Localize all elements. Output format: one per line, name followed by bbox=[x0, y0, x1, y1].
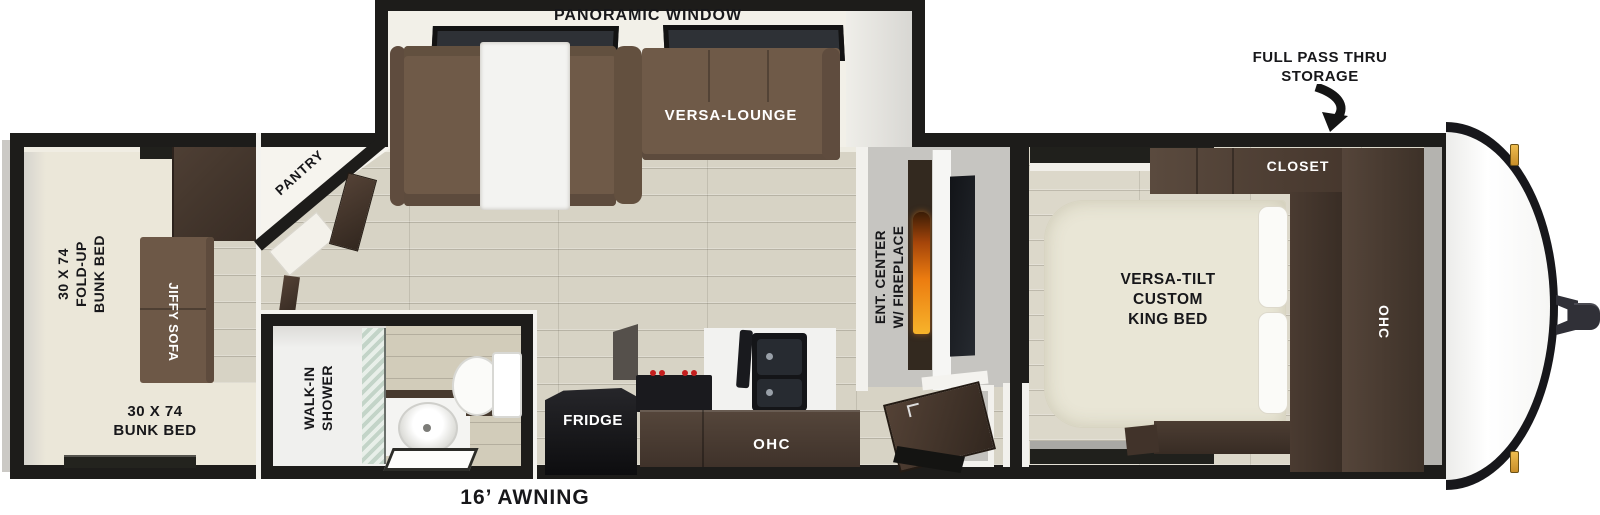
storage-arrow-icon bbox=[1302, 84, 1354, 134]
ent-wall-trim bbox=[856, 147, 868, 391]
kitchen-ohc-seam bbox=[702, 410, 704, 467]
tv-panel bbox=[950, 175, 975, 356]
sink-basin-top bbox=[757, 339, 802, 375]
dinette-table bbox=[480, 42, 570, 210]
floorplan: 30 X 74 FOLD-UP BUNK BED JIFFY SOFA 30 X… bbox=[0, 0, 1600, 515]
stove bbox=[636, 375, 712, 412]
awning-label: 16’ AWNING bbox=[415, 486, 635, 510]
versa-lounge-seam-1 bbox=[708, 50, 710, 102]
foldup-bunk-label: 30 X 74 FOLD-UP BUNK BED bbox=[50, 219, 112, 329]
bath-mat bbox=[383, 448, 478, 471]
bunkroom-overhead-cabinet bbox=[172, 147, 258, 241]
bathroom-seam-right bbox=[533, 310, 537, 479]
sink-drain bbox=[423, 424, 431, 432]
toilet-tank bbox=[492, 352, 522, 418]
ent-center-label: ENT. CENTER W/ FIREPLACE bbox=[870, 202, 910, 352]
stove-knob-3 bbox=[682, 370, 688, 376]
jiffy-sofa-bolster bbox=[206, 237, 214, 383]
stove-knob-1 bbox=[650, 370, 656, 376]
kitchen-ohc-label: OHC bbox=[722, 434, 822, 456]
bedroom-doorframe-left bbox=[1003, 383, 1010, 467]
panoramic-window-label: PANORAMIC WINDOW bbox=[498, 5, 798, 27]
hitch-tongue bbox=[1574, 303, 1600, 330]
bunkroom-left-wall-shade bbox=[24, 152, 46, 465]
closet-seam-2 bbox=[1232, 148, 1234, 194]
versa-lounge-seam-2 bbox=[767, 50, 769, 102]
stove-knob-4 bbox=[691, 370, 697, 376]
sink-drain-bottom bbox=[766, 389, 773, 396]
jiffy-sofa-label: JIFFY SOFA bbox=[163, 257, 183, 387]
fireplace-flame bbox=[913, 212, 930, 334]
fridge-label: FRIDGE bbox=[550, 410, 636, 432]
bunkroom-bottom-window bbox=[64, 455, 196, 468]
front-interior-wall bbox=[1424, 147, 1442, 465]
front-cap bbox=[1446, 132, 1550, 480]
marker-light-bottom bbox=[1510, 451, 1519, 473]
bed-pillow-top bbox=[1258, 206, 1288, 308]
sink-basin-bottom bbox=[757, 379, 802, 407]
versa-lounge-label: VERSA-LOUNGE bbox=[631, 104, 831, 128]
bunkroom-floor-strip bbox=[214, 241, 256, 383]
sink-drain-top bbox=[766, 353, 773, 360]
shower-glass-door bbox=[362, 328, 386, 464]
bunkroom-top-window bbox=[140, 147, 176, 159]
stove-knob-2 bbox=[659, 370, 665, 376]
closet-seam-1 bbox=[1196, 148, 1198, 194]
bed-foot-bench bbox=[1154, 421, 1294, 454]
bedroom-wardrobe-mid bbox=[1290, 192, 1342, 472]
king-bed-label: VERSA-TILT CUSTOM KING BED bbox=[1078, 258, 1258, 342]
marker-light-top bbox=[1510, 144, 1519, 166]
walk-in-shower-label: WALK-IN SHOWER bbox=[297, 333, 339, 463]
kitchen-tall-cabinet bbox=[613, 324, 638, 380]
bed-foot-step bbox=[1125, 424, 1160, 455]
slideout-right-wall bbox=[846, 11, 912, 147]
bedroom-doorframe-right bbox=[1022, 383, 1029, 467]
bedroom-ohc-label: OHC bbox=[1372, 292, 1396, 352]
ent-white-column bbox=[932, 150, 951, 390]
closet-label: CLOSET bbox=[1238, 155, 1358, 177]
bunk-bed-label: 30 X 74 BUNK BED bbox=[70, 400, 240, 442]
bed-pillow-bottom bbox=[1258, 312, 1288, 414]
